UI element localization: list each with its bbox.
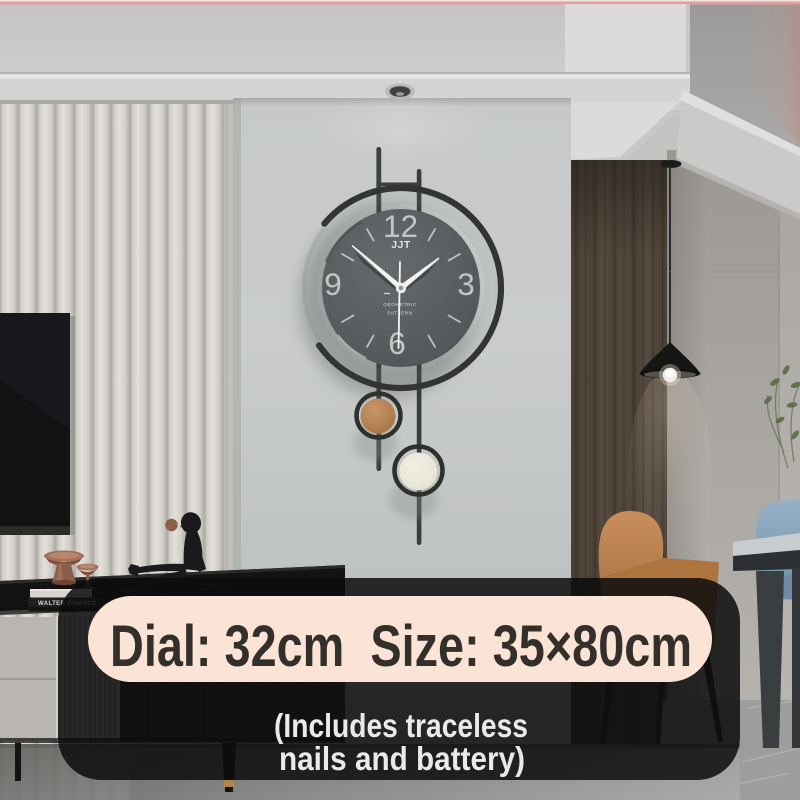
svg-text:6: 6	[388, 325, 406, 361]
svg-text:(Includes traceless: (Includes traceless	[274, 707, 528, 744]
svg-text:JJT: JJT	[391, 239, 411, 251]
svg-text:9: 9	[324, 266, 342, 302]
svg-text:3: 3	[457, 266, 475, 302]
svg-text:Dial: 32cm Size: 35×80cm: Dial: 32cm Size: 35×80cm	[110, 614, 692, 679]
svg-text:nails and battery): nails and battery)	[279, 740, 525, 777]
